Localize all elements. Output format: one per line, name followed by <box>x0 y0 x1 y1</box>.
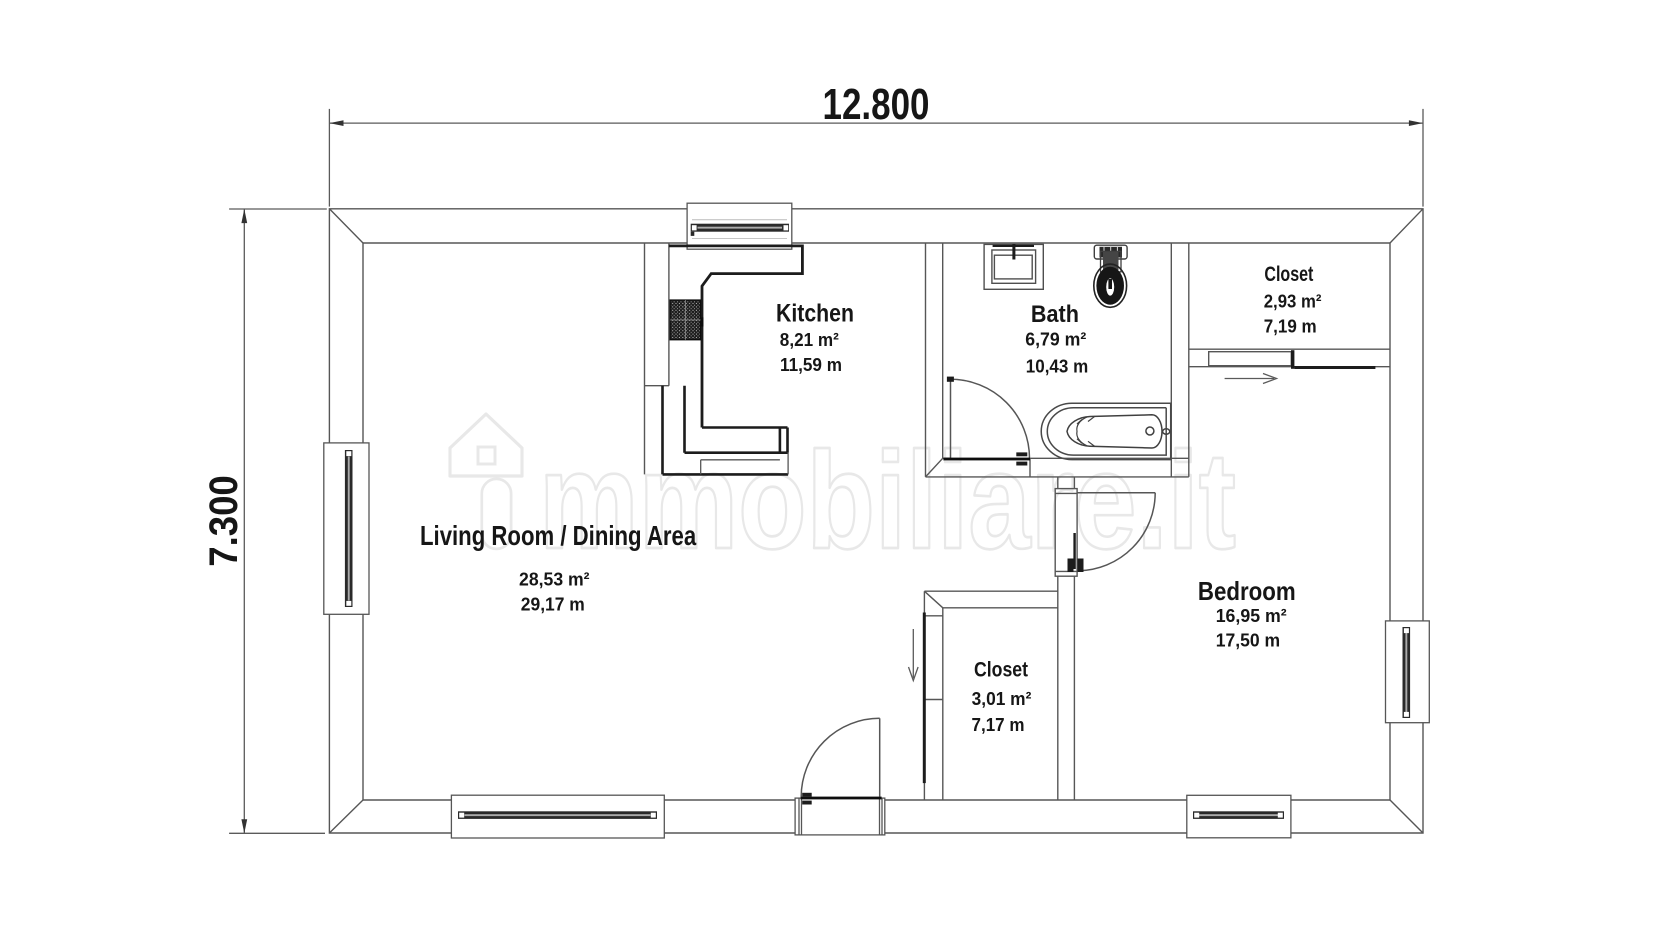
svg-text:17,50 m: 17,50 m <box>1216 630 1280 651</box>
svg-text:Kitchen: Kitchen <box>776 300 854 328</box>
svg-text:28,53 m²: 28,53 m² <box>519 569 590 590</box>
svg-text:11,59 m: 11,59 m <box>780 354 842 375</box>
svg-text:Closet: Closet <box>974 659 1028 682</box>
svg-text:7,17 m: 7,17 m <box>972 714 1025 735</box>
svg-text:Bath: Bath <box>1031 301 1079 328</box>
svg-text:Living Room / Dining Area: Living Room / Dining Area <box>420 520 697 551</box>
svg-text:Closet: Closet <box>1264 263 1313 286</box>
svg-text:16,95 m²: 16,95 m² <box>1216 605 1287 626</box>
svg-text:12.800: 12.800 <box>823 80 930 129</box>
svg-text:8,21 m²: 8,21 m² <box>780 329 839 350</box>
svg-text:Bedroom: Bedroom <box>1198 576 1296 606</box>
svg-text:3,01 m²: 3,01 m² <box>972 688 1032 709</box>
svg-text:7.300: 7.300 <box>202 475 246 566</box>
svg-text:2,93 m²: 2,93 m² <box>1264 291 1322 312</box>
svg-text:10,43 m: 10,43 m <box>1026 356 1088 377</box>
svg-text:6,79 m²: 6,79 m² <box>1025 329 1086 350</box>
svg-text:7,19 m: 7,19 m <box>1264 315 1317 336</box>
svg-text:29,17 m: 29,17 m <box>521 594 585 615</box>
